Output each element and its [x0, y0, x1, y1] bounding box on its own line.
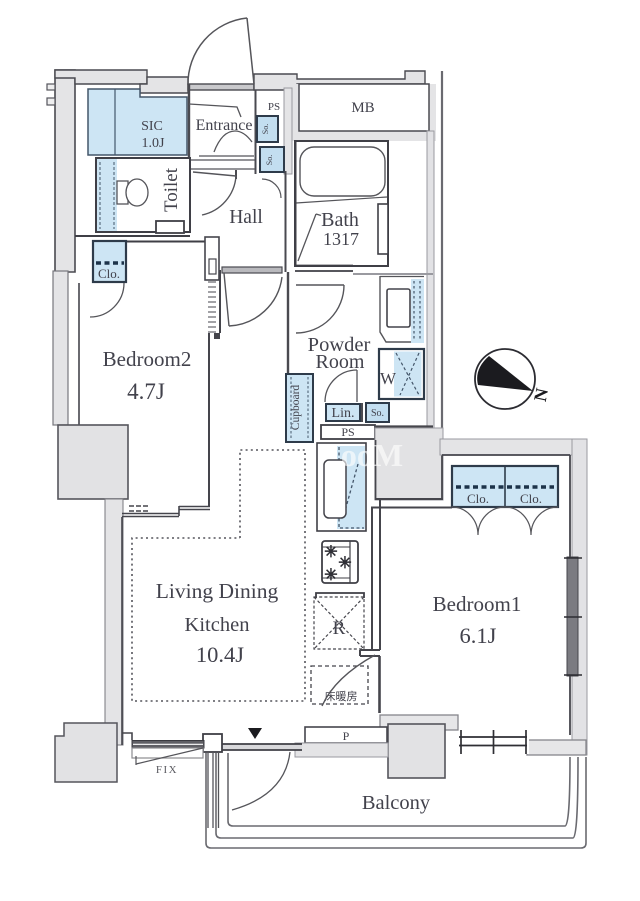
svg-text:10.4J: 10.4J: [196, 642, 244, 667]
svg-text:1317: 1317: [323, 229, 359, 249]
svg-text:Balcony: Balcony: [362, 792, 431, 814]
svg-text:So.: So.: [265, 155, 274, 165]
svg-text:Room: Room: [316, 351, 365, 373]
svg-text:Cupboard: Cupboard: [290, 385, 302, 431]
svg-text:Bedroom1: Bedroom1: [433, 592, 522, 616]
svg-text:✳: ✳: [338, 555, 351, 572]
svg-text:1.0J: 1.0J: [142, 136, 166, 151]
svg-text:Bedroom2: Bedroom2: [103, 347, 192, 371]
svg-text:Hall: Hall: [229, 207, 263, 228]
svg-text:Clo.: Clo.: [98, 266, 120, 281]
svg-text:Entrance: Entrance: [196, 117, 253, 134]
svg-text:Toilet: Toilet: [161, 167, 182, 212]
svg-text:FIX: FIX: [156, 764, 178, 776]
svg-text:✳: ✳: [324, 567, 337, 584]
svg-text:P: P: [343, 729, 350, 743]
svg-text:Living Dining: Living Dining: [156, 579, 279, 603]
svg-text:✳: ✳: [324, 544, 337, 561]
svg-text:MB: MB: [351, 100, 374, 116]
svg-text:Kitchen: Kitchen: [185, 614, 250, 636]
svg-text:6.1J: 6.1J: [460, 623, 497, 648]
svg-text:Clo.: Clo.: [467, 491, 489, 506]
svg-text:PS: PS: [268, 101, 280, 113]
svg-text:R: R: [333, 618, 346, 639]
svg-text:4.7J: 4.7J: [127, 379, 165, 404]
svg-text:W: W: [380, 369, 397, 388]
svg-text:ooM: ooM: [341, 437, 403, 473]
svg-text:Clo.: Clo.: [520, 491, 542, 506]
svg-text:床暖房: 床暖房: [325, 689, 358, 703]
svg-text:SIC: SIC: [141, 119, 163, 134]
svg-text:So.: So.: [371, 408, 384, 419]
svg-text:So.: So.: [261, 124, 270, 134]
svg-text:Lin.: Lin.: [332, 406, 355, 421]
svg-text:Bath: Bath: [321, 209, 359, 231]
